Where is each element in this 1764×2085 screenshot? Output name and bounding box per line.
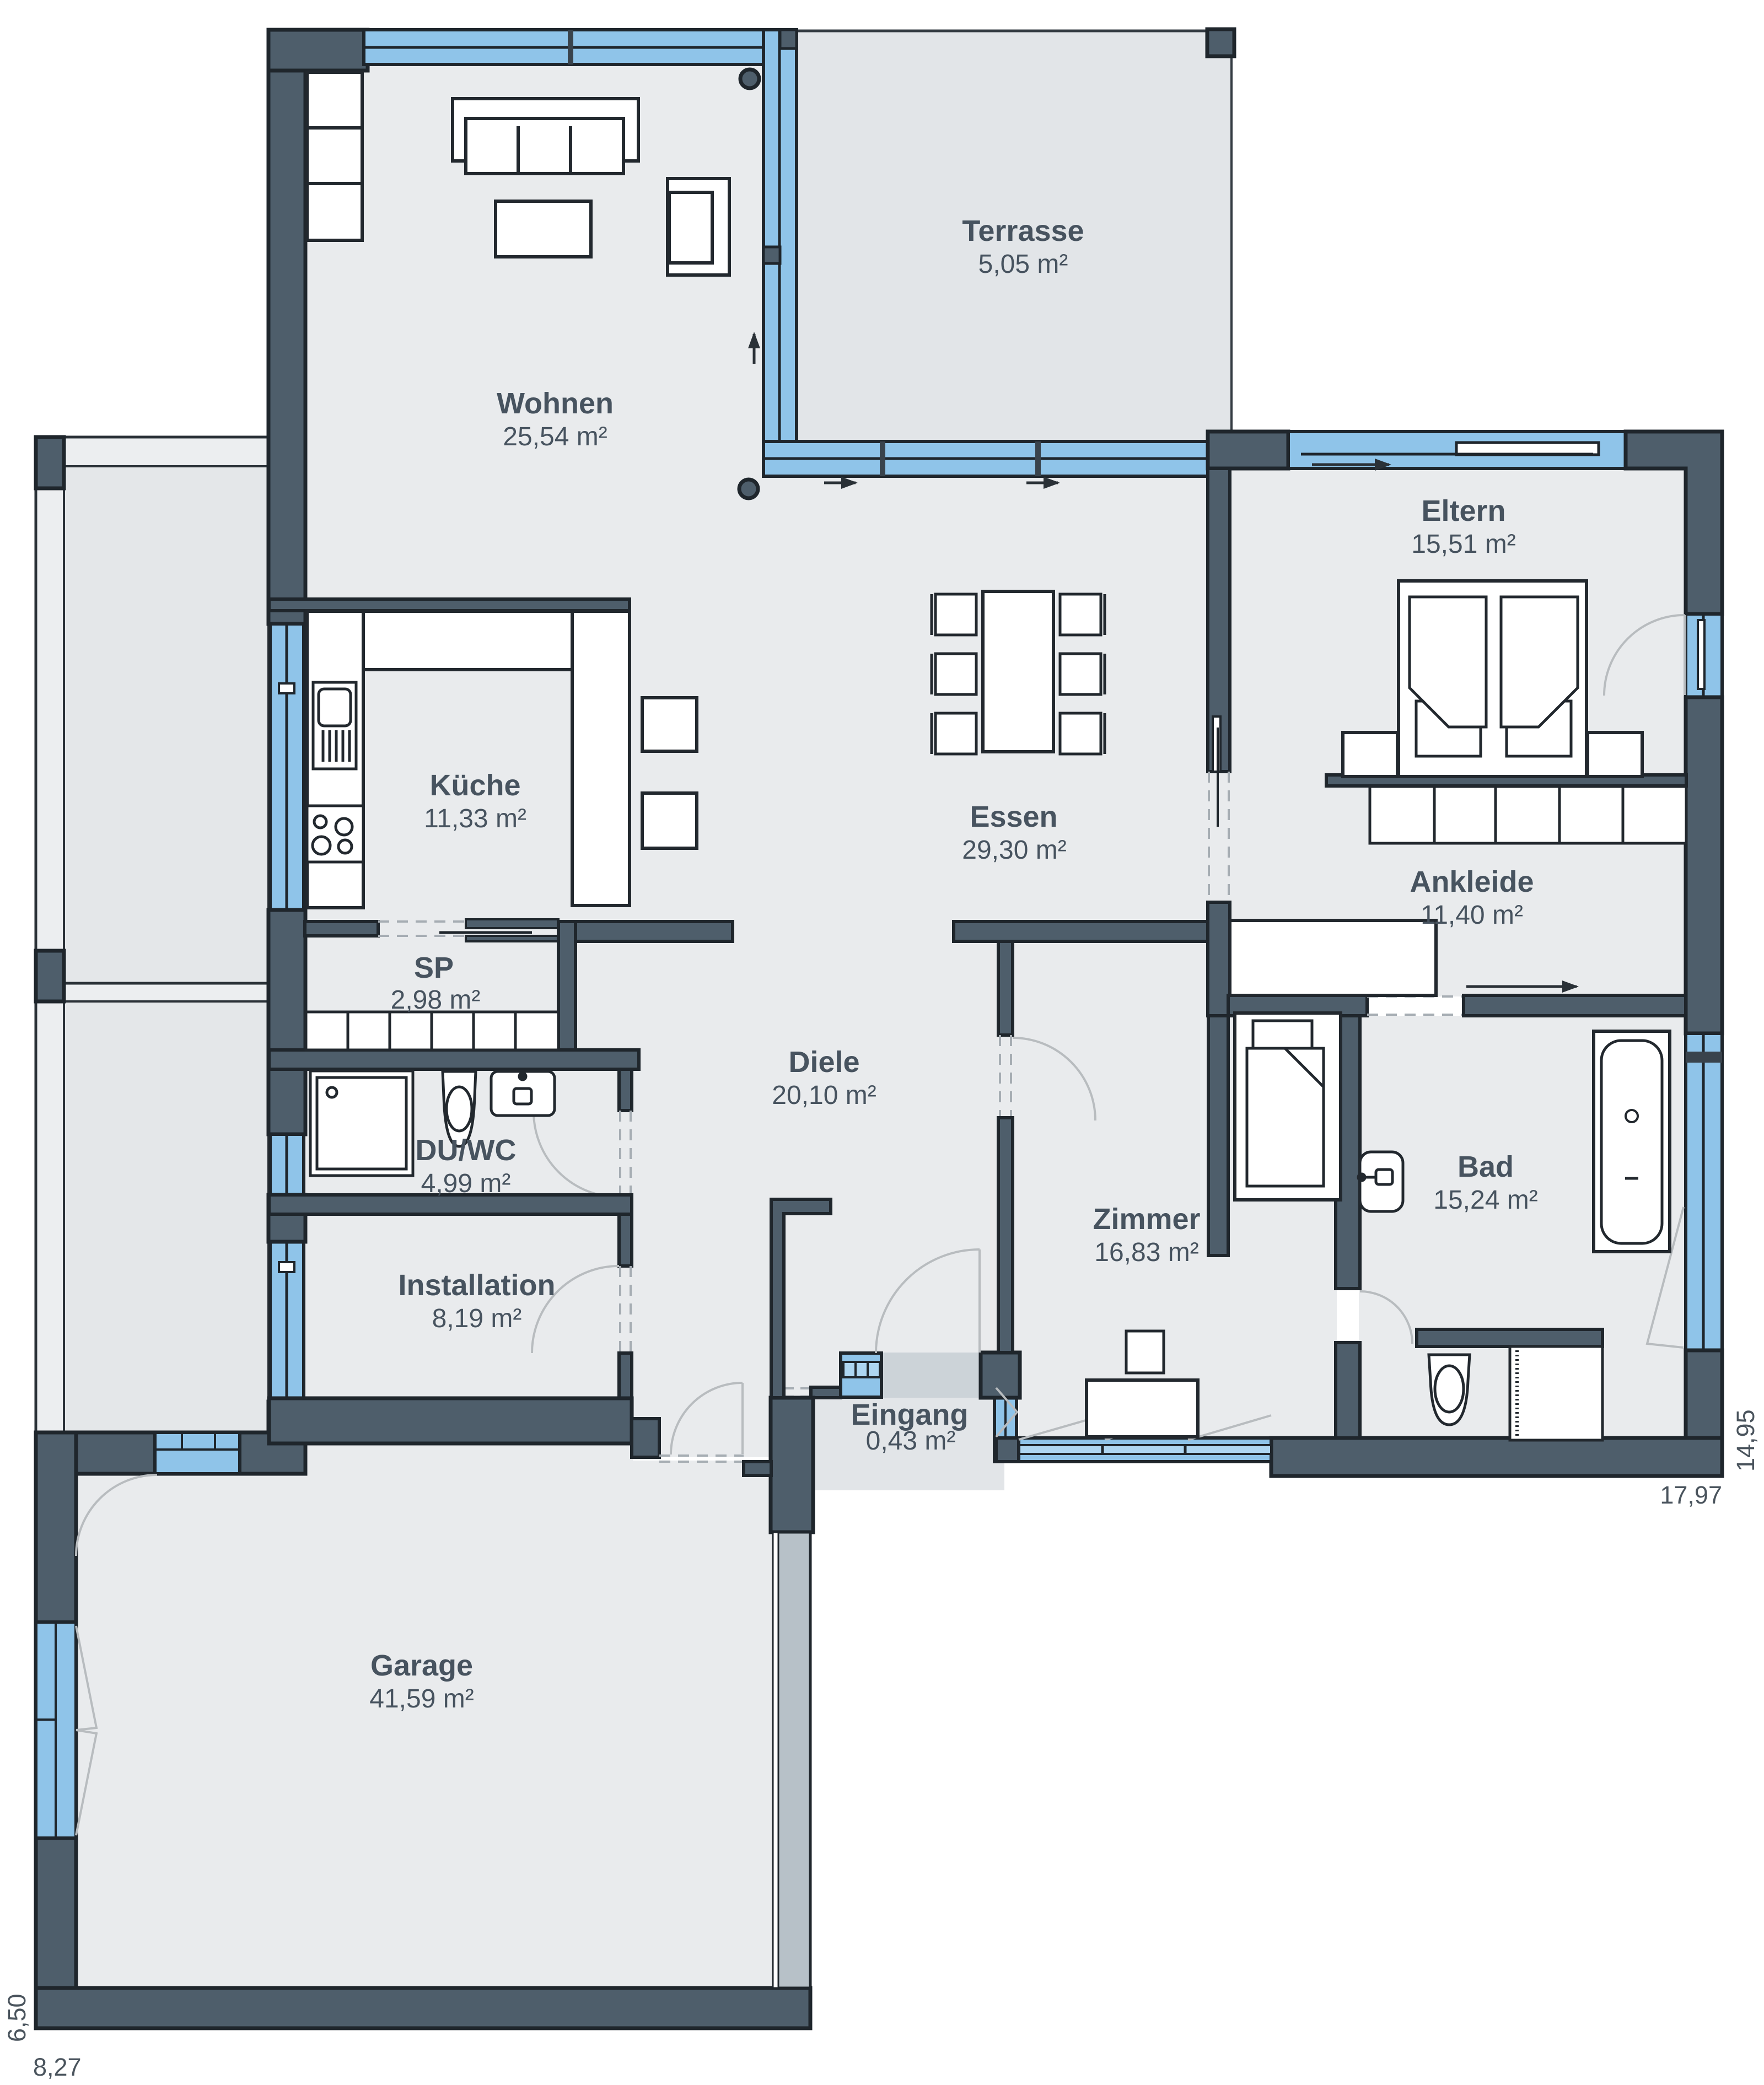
svg-text:16,83 m²: 16,83 m² [1094, 1238, 1198, 1267]
svg-text:Wohnen: Wohnen [497, 387, 614, 420]
svg-text:0,43 m²: 0,43 m² [866, 1426, 956, 1456]
svg-text:Essen: Essen [970, 800, 1057, 833]
svg-text:11,40 m²: 11,40 m² [1421, 901, 1523, 930]
svg-text:8,27: 8,27 [33, 2053, 82, 2081]
svg-text:20,10 m²: 20,10 m² [772, 1081, 876, 1110]
svg-text:Installation: Installation [398, 1269, 555, 1302]
svg-text:14,95: 14,95 [1731, 1409, 1760, 1472]
svg-text:4,99 m²: 4,99 m² [421, 1169, 511, 1198]
svg-text:Garage: Garage [370, 1649, 473, 1682]
svg-text:Küche: Küche [429, 769, 520, 802]
svg-text:Ankleide: Ankleide [1410, 865, 1534, 898]
svg-text:15,51 m²: 15,51 m² [1411, 530, 1515, 559]
svg-text:DU/WC: DU/WC [416, 1134, 517, 1167]
svg-text:29,30 m²: 29,30 m² [962, 836, 1066, 865]
svg-text:SP: SP [414, 951, 454, 984]
svg-text:2,98 m²: 2,98 m² [391, 985, 481, 1015]
svg-text:Zimmer: Zimmer [1093, 1203, 1200, 1236]
svg-text:Terrasse: Terrasse [962, 214, 1084, 247]
svg-text:5,05 m²: 5,05 m² [978, 250, 1068, 279]
svg-text:6,50: 6,50 [3, 1994, 31, 2042]
svg-text:11,33 m²: 11,33 m² [424, 804, 526, 833]
svg-text:41,59 m²: 41,59 m² [369, 1684, 474, 1714]
svg-text:15,24 m²: 15,24 m² [1433, 1186, 1537, 1215]
svg-text:Diele: Diele [788, 1046, 859, 1079]
svg-text:Bad: Bad [1458, 1150, 1514, 1183]
svg-text:17,97: 17,97 [1660, 1481, 1722, 1509]
svg-text:8,19 m²: 8,19 m² [432, 1304, 522, 1333]
svg-text:25,54 m²: 25,54 m² [503, 422, 607, 451]
svg-text:Eltern: Eltern [1421, 494, 1505, 527]
